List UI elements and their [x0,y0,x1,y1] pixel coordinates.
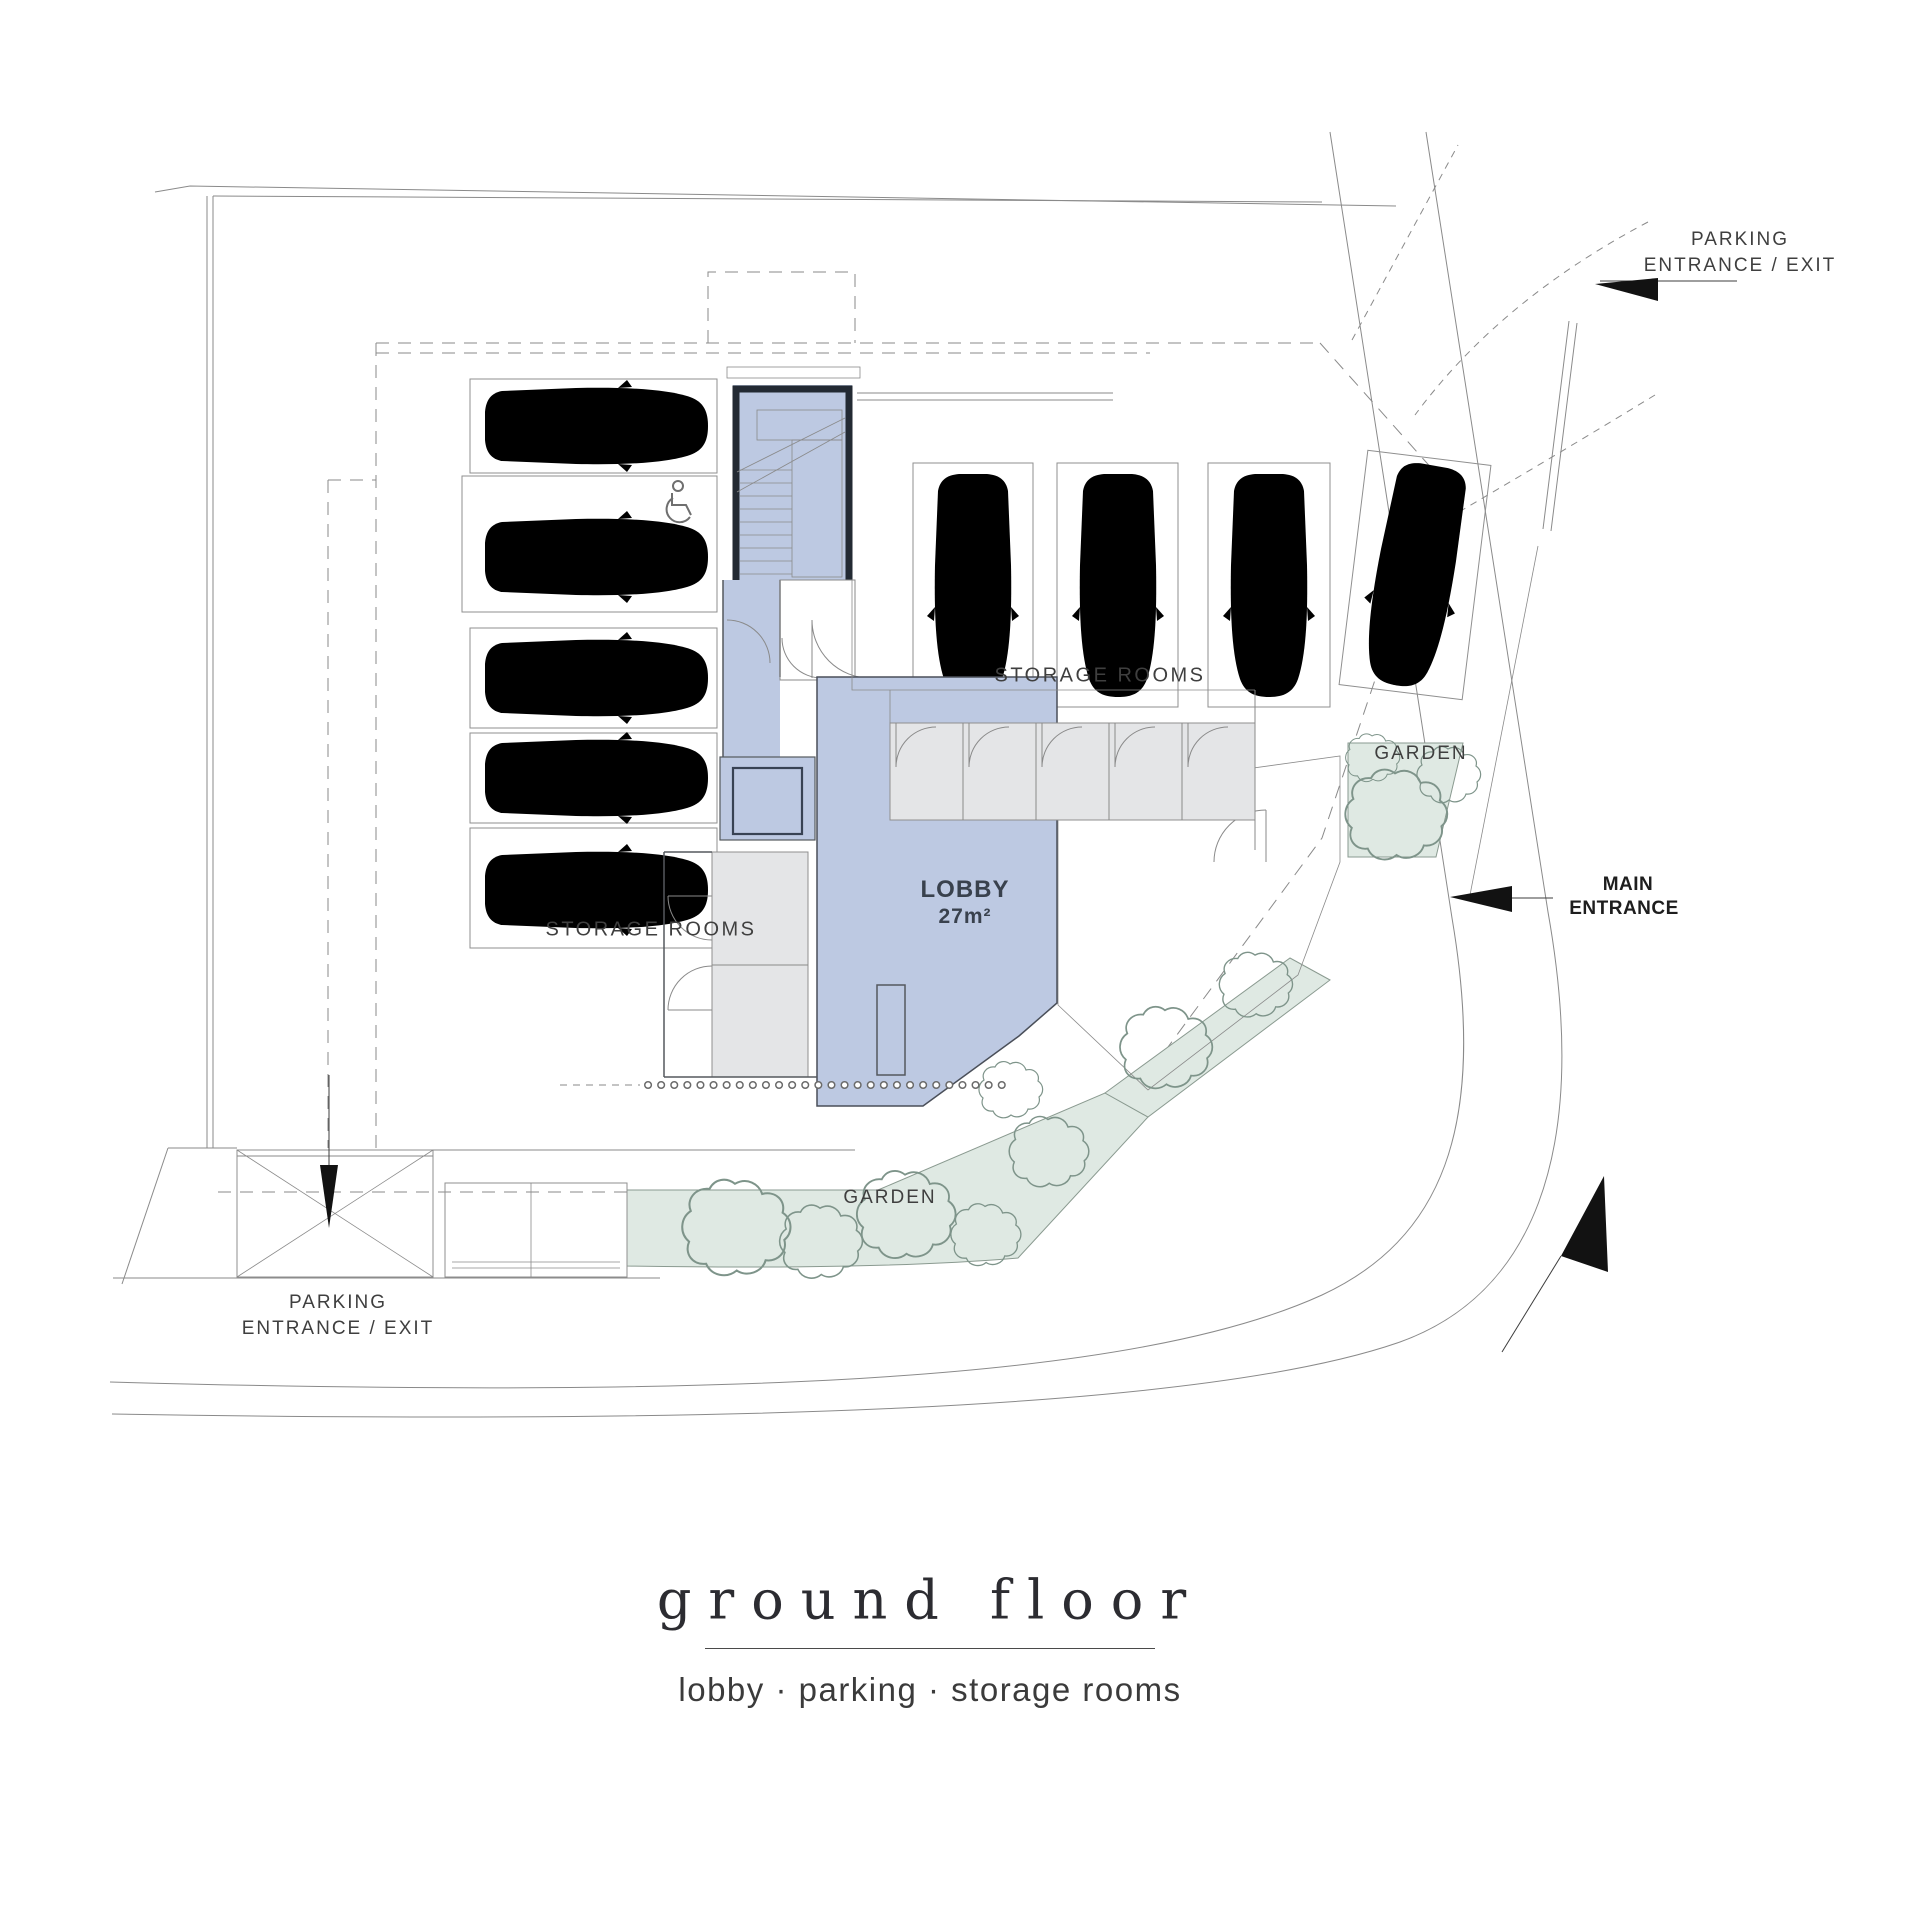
parking-entrance-bottom-label-line1: PARKING [289,1292,387,1314]
car-icon [485,632,708,724]
page-subtitle: lobby · parking · storage rooms [678,1671,1181,1709]
floor-plan-page: PARKING ENTRANCE / EXIT MAIN ENTRANCE ST… [0,0,1920,1920]
main-entrance-label-line2: ENTRANCE [1569,898,1679,920]
north-arrow-icon [1502,1176,1608,1352]
main-entrance-label-line1: MAIN [1603,874,1654,896]
lobby-label: LOBBY [921,876,1010,904]
lobby-area-label: 27m² [938,905,991,929]
title-divider [705,1648,1155,1649]
car-icon [485,380,708,472]
floor-plan-drawing [0,0,1920,1920]
car-icon [1223,474,1315,697]
parking-entrance-bottom-arrow-icon [320,1075,338,1228]
car-icon [485,511,708,603]
garden-bottom-label: GARDEN [843,1187,936,1209]
storage-rooms-left-label: STORAGE ROOMS [545,919,756,942]
car-icon [485,732,708,824]
page-title: ground floor [657,1569,1203,1632]
parking-entrance-top-label-line2: ENTRANCE / EXIT [1644,255,1837,277]
car-icon [1350,458,1479,694]
main-entrance-arrow-icon [1450,886,1553,912]
accessible-parking-icon [667,481,691,522]
parking-entrance-top-label-line1: PARKING [1691,229,1789,251]
storage-rooms-right-label: STORAGE ROOMS [994,665,1205,688]
garage-walls [857,393,1113,400]
garden-top-label: GARDEN [1374,743,1467,765]
elevator [720,757,815,840]
parking-entrance-bottom-label-line2: ENTRANCE / EXIT [242,1318,435,1340]
parking-entrance-top-arrow-icon [1595,278,1737,301]
stair-core [727,367,860,580]
